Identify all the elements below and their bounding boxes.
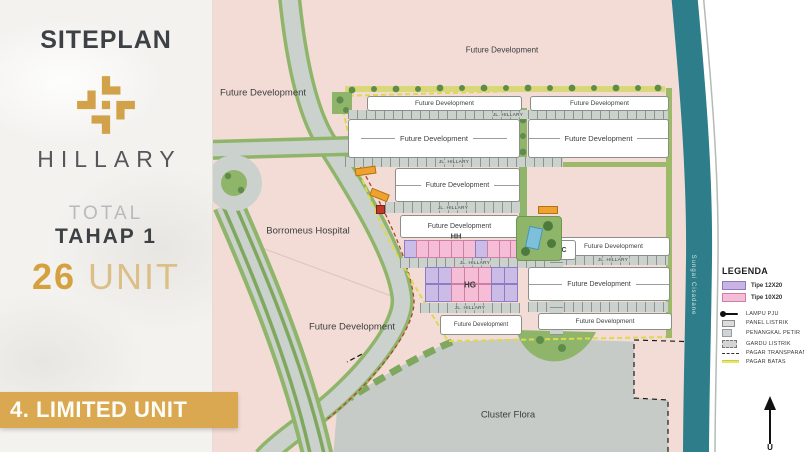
area-label-hospital: Borromeus Hospital — [266, 226, 349, 237]
legend-item: PAGAR BATAS — [722, 359, 802, 365]
unit-cell — [491, 284, 505, 302]
north-indicator-label: U — [763, 443, 777, 452]
unit-count: 26 UNIT — [0, 256, 212, 298]
tree-icon — [547, 239, 556, 248]
street-label: JL. HILLARY — [491, 112, 525, 117]
type-10x20-swatch-icon — [722, 293, 746, 302]
unit-cell — [478, 284, 492, 302]
legend-panel: LEGENDA Tipe 12X20 Tipe 10X20 LAMPU PJU … — [722, 266, 802, 367]
block-future-development: Future Development — [348, 119, 520, 158]
road-strip: JL. HILLARY — [420, 303, 520, 313]
penangkal-petir-icon — [722, 329, 742, 337]
street-label: JL. HILLARY — [436, 205, 470, 210]
unit-cell — [504, 284, 518, 302]
unit-cell — [438, 284, 452, 302]
road-strip: JL. HILLARY — [345, 157, 563, 167]
unit-cell — [478, 267, 492, 284]
road-strip: JL. HILLARY — [348, 110, 668, 119]
row-label-hg: HG — [464, 281, 476, 290]
lampu-pju-icon — [722, 313, 742, 315]
phase-label: TAHAP 1 — [0, 225, 212, 249]
unit-cell — [504, 267, 518, 284]
street-label: JL. HILLARY — [437, 160, 471, 165]
road-strip: JL. HILLARY — [385, 202, 520, 213]
sidebar: SITEPLAN HILLARY TOTAL TAHAP 1 26 UNIT — [0, 0, 213, 452]
street-label: JL. HILLARY — [458, 261, 492, 266]
siteplan-page: JL. HILLARY JL. HILLARY JL. HILLARY JL. … — [0, 0, 804, 452]
unit-cell — [425, 267, 439, 284]
block-future-development: Future Development — [528, 119, 669, 158]
unit-cell — [491, 267, 505, 284]
unit-cell — [438, 267, 452, 284]
gardu-listrik-icon — [722, 340, 742, 348]
block-future-development: Future Development — [367, 96, 522, 111]
street-label: JL. HILLARY — [453, 306, 487, 311]
limited-unit-banner: 4. LIMITED UNIT — [0, 392, 238, 428]
legend-type-row: Tipe 12X20 — [722, 281, 802, 290]
tree-icon — [543, 221, 553, 231]
area-label-future-development: Future Development — [466, 46, 538, 55]
block-future-development: Future Development — [395, 168, 520, 202]
gate-marker — [538, 206, 558, 214]
legend-item: PAGAR TRANSPARAN — [722, 350, 802, 356]
block-future-development: Future Development — [538, 313, 672, 330]
total-label: TOTAL — [0, 203, 212, 225]
street-label: JL. HILLARY — [596, 258, 630, 263]
tree-icon — [521, 247, 530, 256]
river-label: Sungai Cisadane — [690, 255, 696, 316]
brand-name: HILLARY — [0, 146, 212, 173]
block-future-development: Future Development — [440, 315, 522, 335]
clubhouse-park — [516, 216, 562, 261]
legend-item: LAMPU PJU — [722, 311, 802, 317]
utility-marker — [376, 205, 385, 214]
block-future-development: Future Development — [530, 96, 669, 111]
pagar-transparan-icon — [722, 353, 742, 354]
area-label-future-development: Future Development — [309, 322, 395, 333]
legend-item: GARDU LISTRIK — [722, 340, 802, 348]
hillary-logo-icon — [75, 74, 137, 136]
legend-title: LEGENDA — [722, 266, 802, 276]
legend-item: PANEL LISTRIK — [722, 320, 802, 327]
area-label-cluster-flora: Cluster Flora — [481, 410, 535, 421]
unit-cell — [425, 284, 439, 302]
block-future-development: Future Development — [528, 267, 670, 301]
type-12x20-swatch-icon — [722, 281, 746, 290]
page-title: SITEPLAN — [0, 26, 212, 55]
legend-item: PENANGKAL PETIR — [722, 329, 802, 337]
panel-listrik-icon — [722, 320, 742, 327]
row-label-hh: HH — [451, 232, 462, 241]
legend-type-row: Tipe 10X20 — [722, 293, 802, 302]
pagar-batas-icon — [722, 360, 742, 363]
road-strip — [528, 302, 668, 312]
area-label-future-development: Future Development — [220, 88, 306, 99]
